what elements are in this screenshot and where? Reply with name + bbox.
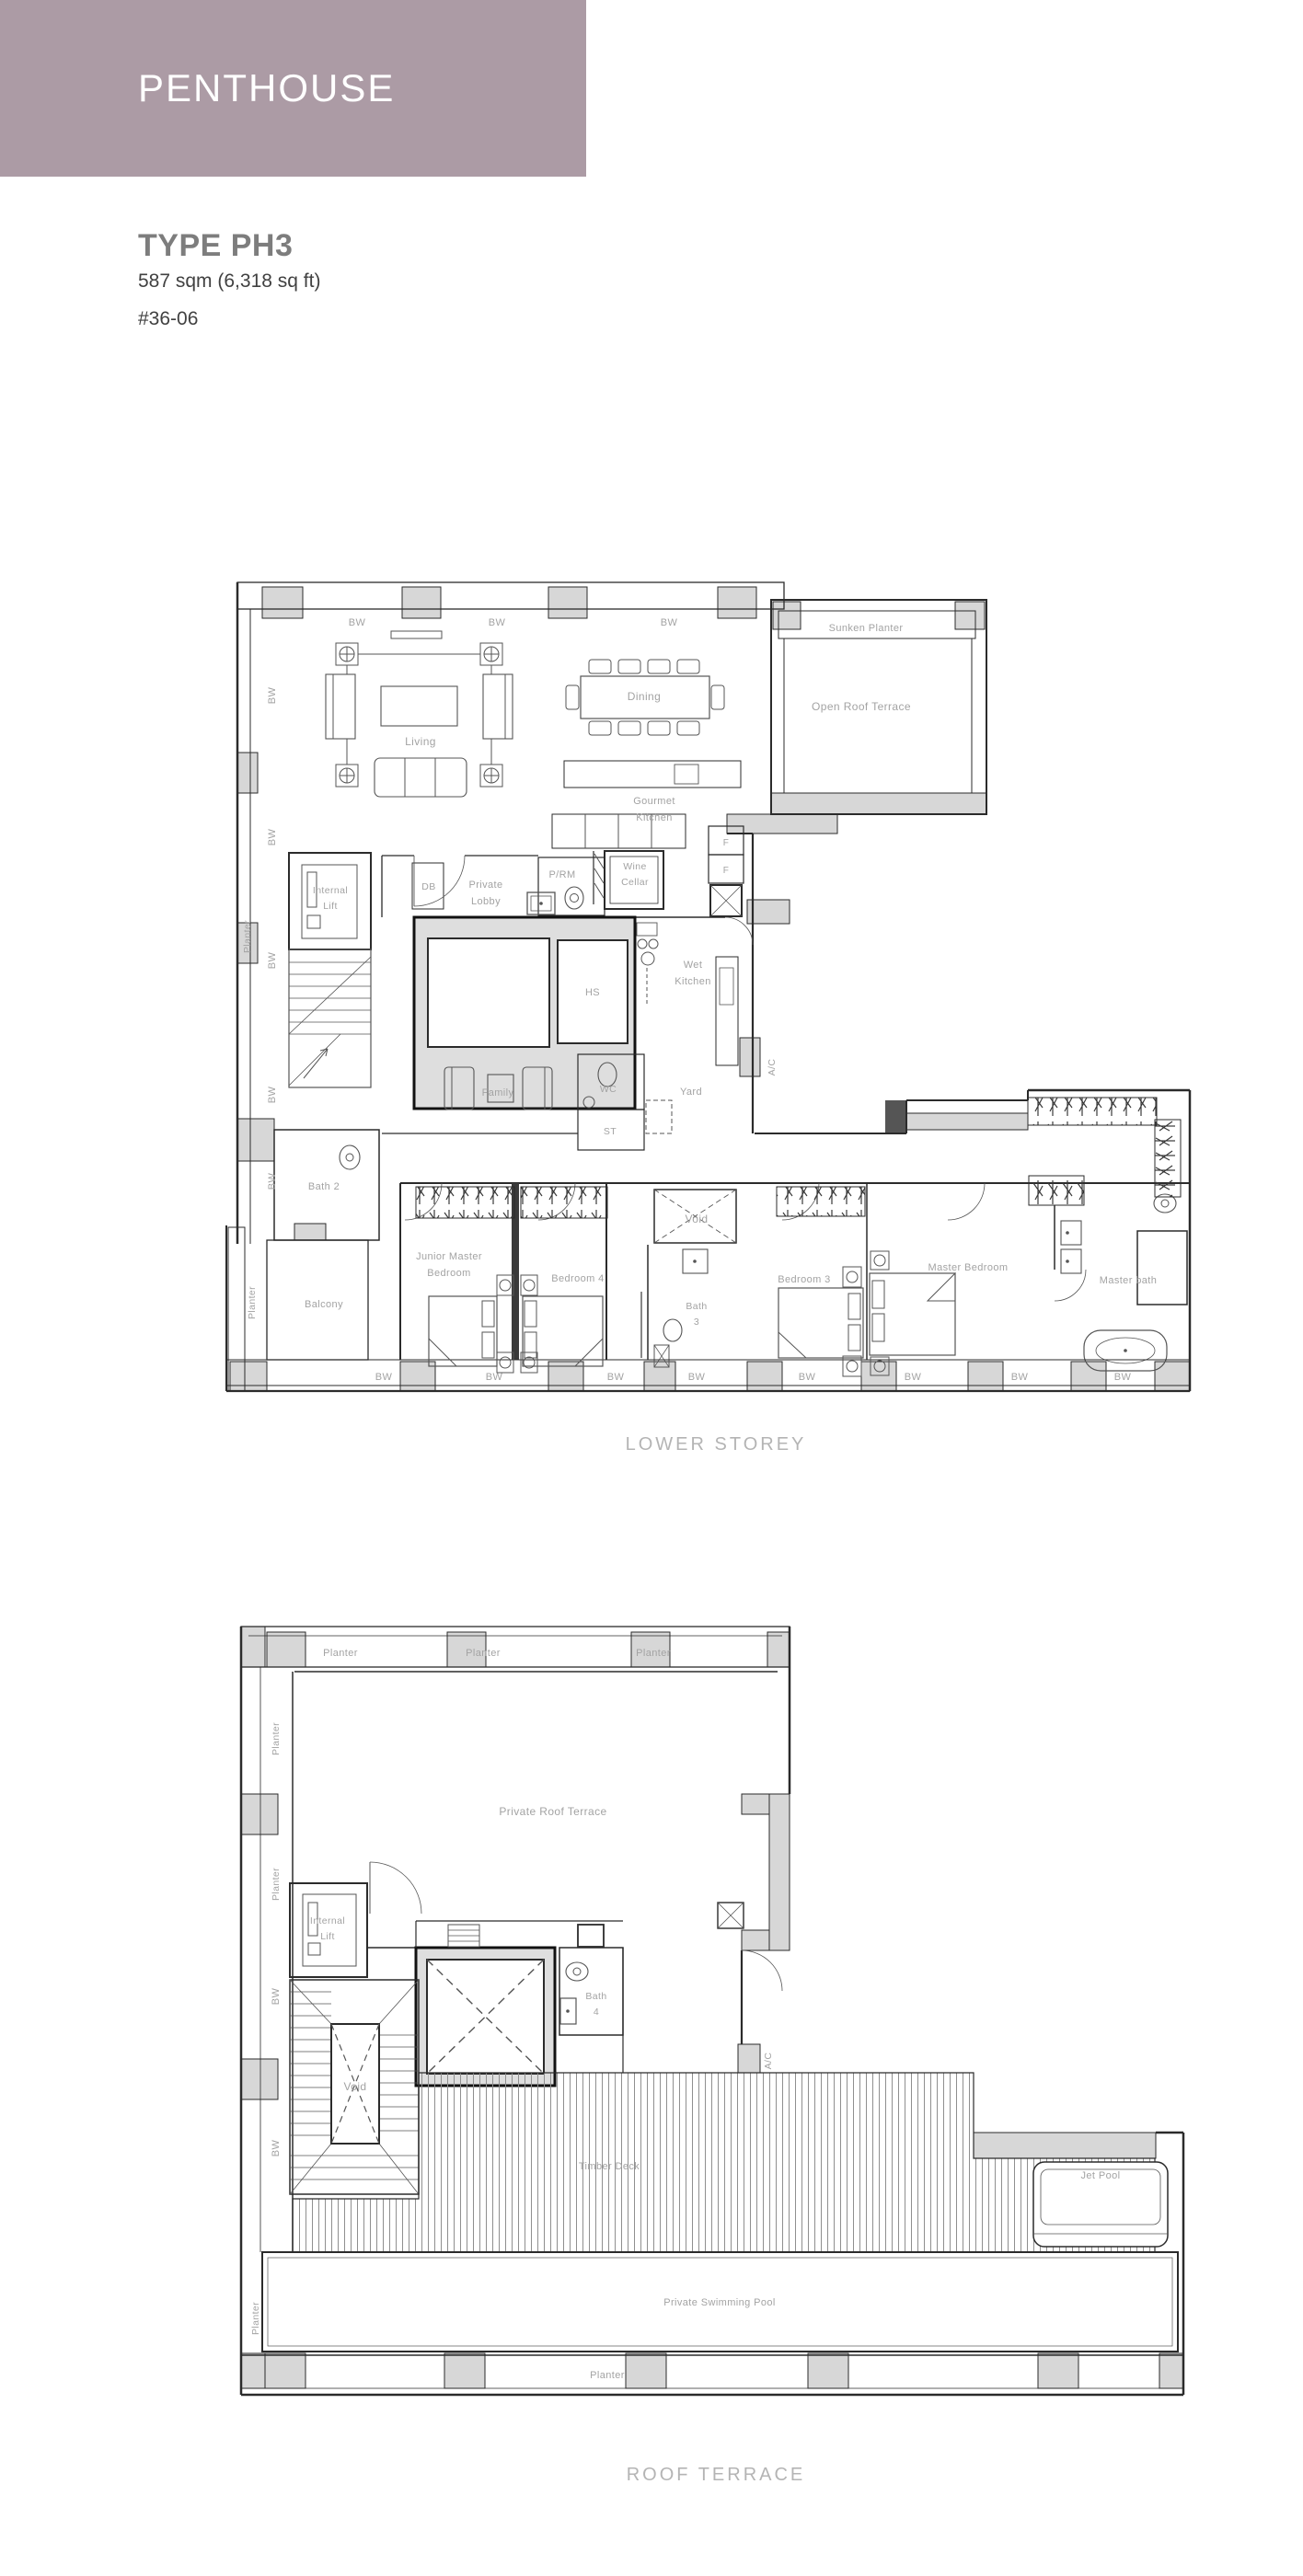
plan-label: P/RM xyxy=(548,869,575,880)
plan-label: Planter xyxy=(323,1648,358,1659)
plan-label: Bath 2 xyxy=(308,1181,340,1192)
plan-label: ST xyxy=(604,1126,617,1137)
plan-label: Wine xyxy=(623,861,647,872)
plan-label: BW xyxy=(349,617,366,628)
plan-label: Balcony xyxy=(305,1299,343,1310)
plan-label: BW xyxy=(271,2140,282,2157)
plan-label: Bedroom 3 xyxy=(778,1274,830,1285)
floorplan-drawing: BWBWBWSunken PlanterOpen Roof TerraceDin… xyxy=(0,0,1303,2576)
plan-label: Kitchen xyxy=(675,976,711,987)
plan-label: Bath xyxy=(585,1991,606,2002)
lower-wardrobes xyxy=(416,1098,1181,1218)
plan-label: Planter xyxy=(466,1648,501,1659)
plan-label: Planter xyxy=(242,920,253,953)
plan-label: Junior Master xyxy=(416,1251,482,1262)
plan-label: Master Bedroom xyxy=(928,1262,1009,1273)
plan-label: BW xyxy=(267,829,278,846)
plan-label: Lift xyxy=(320,1931,335,1942)
plan-label: WC xyxy=(600,1084,617,1095)
plan-label: BW xyxy=(375,1372,393,1383)
plan-label: Master bath xyxy=(1100,1275,1157,1286)
roof-labels: PlanterPlanterPlanterPlanterPlanterPriva… xyxy=(250,1648,1120,2381)
plan-label: BW xyxy=(271,1988,282,2006)
plan-label: Planter xyxy=(636,1648,671,1659)
plan-label: Lobby xyxy=(471,896,501,907)
roof-caption: ROOF TERRACE xyxy=(627,2465,806,2485)
plan-label: Void xyxy=(344,2080,367,2093)
plan-label: Lift xyxy=(323,901,338,912)
floorplan-page: PENTHOUSE TYPE PH3 587 sqm (6,318 sq ft)… xyxy=(0,0,1303,2576)
plan-label: Planter xyxy=(250,2302,261,2335)
plan-label: Kitchen xyxy=(636,812,673,823)
lower-caption: LOWER STOREY xyxy=(626,1434,807,1455)
plan-label: BW xyxy=(661,617,678,628)
plan-label: Timber Deck xyxy=(579,2161,640,2172)
plan-label: Void xyxy=(686,1213,709,1225)
plan-label: BW xyxy=(1011,1372,1029,1383)
plan-label: BW xyxy=(267,1173,278,1190)
plan-label: HS xyxy=(585,987,600,998)
roof-walls xyxy=(241,1627,1183,2395)
plan-label: Family xyxy=(482,1087,514,1098)
plan-label: Private Roof Terrace xyxy=(499,1805,606,1818)
plan-label: A/C xyxy=(767,1059,778,1076)
plan-label: 3 xyxy=(694,1317,699,1328)
plan-label: Planter xyxy=(271,1722,282,1755)
plan-label: Open Roof Terrace xyxy=(812,700,911,713)
plan-label: Planter xyxy=(247,1286,258,1319)
plan-label: BW xyxy=(267,1087,278,1104)
plan-label: Sunken Planter xyxy=(829,623,904,634)
plan-label: F xyxy=(723,838,730,848)
plan-label: Living xyxy=(405,735,436,748)
lower-plan: BWBWBWSunken PlanterOpen Roof TerraceDin… xyxy=(226,582,1190,1455)
plan-label: BW xyxy=(486,1372,503,1383)
plan-label: BW xyxy=(267,687,278,705)
plan-label: Planter xyxy=(271,1868,282,1901)
plan-label: BW xyxy=(267,952,278,970)
plan-label: Internal xyxy=(310,1915,345,1926)
plan-label: A/C xyxy=(763,2053,774,2070)
plan-label: Yard xyxy=(680,1087,702,1098)
plan-label: Jet Pool xyxy=(1081,2170,1121,2181)
plan-label: Gourmet xyxy=(633,796,675,807)
plan-label: Planter xyxy=(590,2370,625,2381)
plan-label: Private Swimming Pool xyxy=(663,2297,776,2308)
plan-label: Bedroom 4 xyxy=(551,1273,604,1284)
plan-label: Cellar xyxy=(621,877,649,888)
plan-label: 4 xyxy=(594,2007,599,2018)
plan-label: DB xyxy=(421,881,435,892)
plan-label: Internal xyxy=(313,885,348,896)
plan-label: Bath xyxy=(686,1301,707,1312)
plan-label: BW xyxy=(1114,1372,1132,1383)
plan-label: Bedroom xyxy=(427,1268,470,1279)
plan-label: BW xyxy=(688,1372,706,1383)
plan-label: F xyxy=(723,866,730,876)
plan-label: Wet xyxy=(684,960,703,971)
roof-columns xyxy=(241,1627,1183,2388)
plan-label: Private xyxy=(468,880,502,891)
plan-label: BW xyxy=(489,617,506,628)
plan-label: BW xyxy=(905,1372,922,1383)
plan-label: BW xyxy=(607,1372,625,1383)
plan-label: Dining xyxy=(628,690,661,703)
plan-label: BW xyxy=(799,1372,816,1383)
roof-plan: PlanterPlanterPlanterPlanterPlanterPriva… xyxy=(241,1627,1183,2485)
